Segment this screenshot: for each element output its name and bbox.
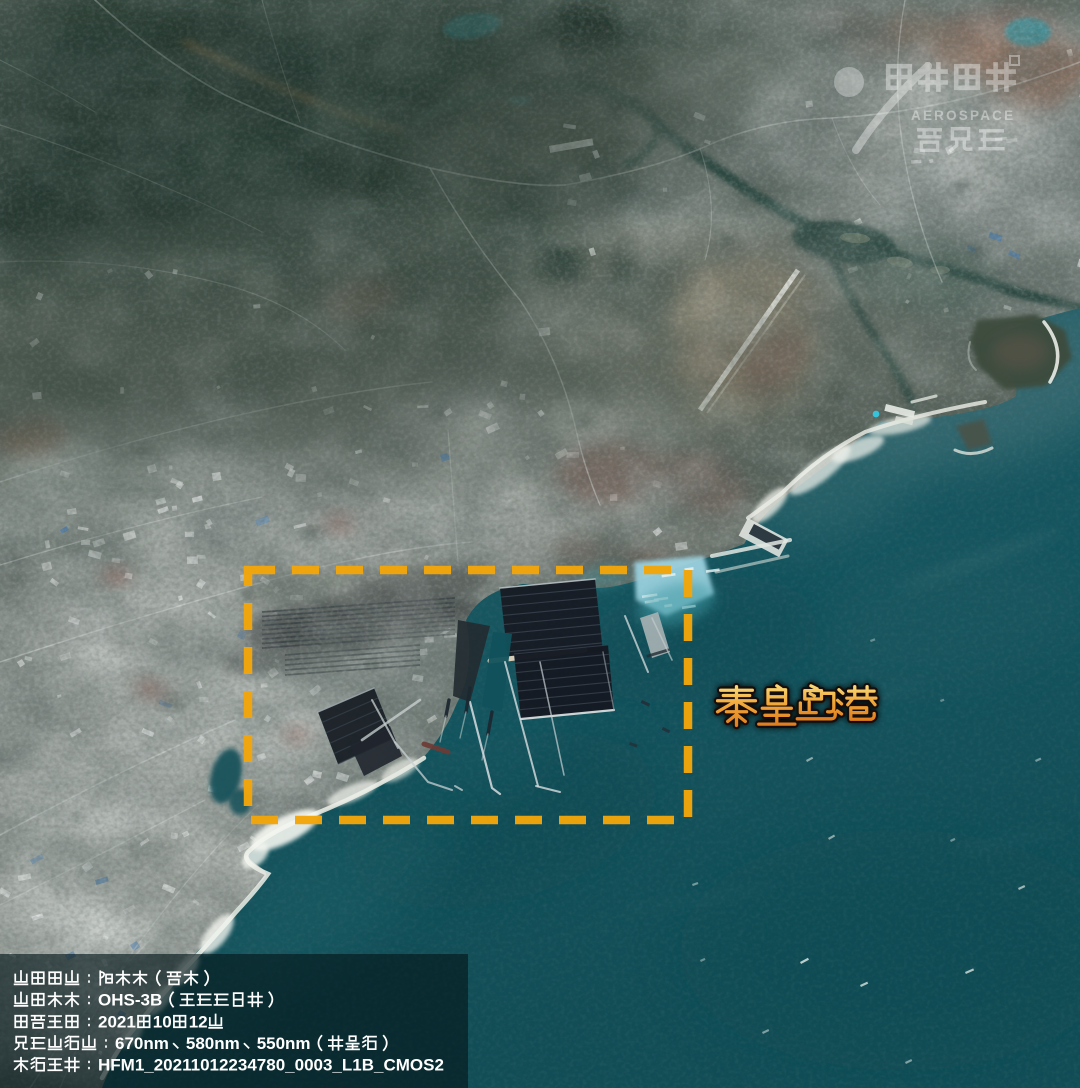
svg-text:AEROSPACE: AEROSPACE — [911, 108, 1015, 123]
svg-text:HFM1_20211012234780_0003_L1B_C: HFM1_20211012234780_0003_L1B_CMOS2 — [98, 1056, 444, 1075]
svg-text:12: 12 — [189, 1013, 208, 1032]
svg-text:2021: 2021 — [98, 1013, 136, 1032]
svg-text:10: 10 — [153, 1013, 172, 1032]
svg-text:OHS-3B: OHS-3B — [98, 991, 162, 1010]
svg-text:550nm: 550nm — [257, 1034, 311, 1053]
svg-text:580nm: 580nm — [186, 1034, 240, 1053]
svg-text:670nm: 670nm — [115, 1034, 169, 1053]
